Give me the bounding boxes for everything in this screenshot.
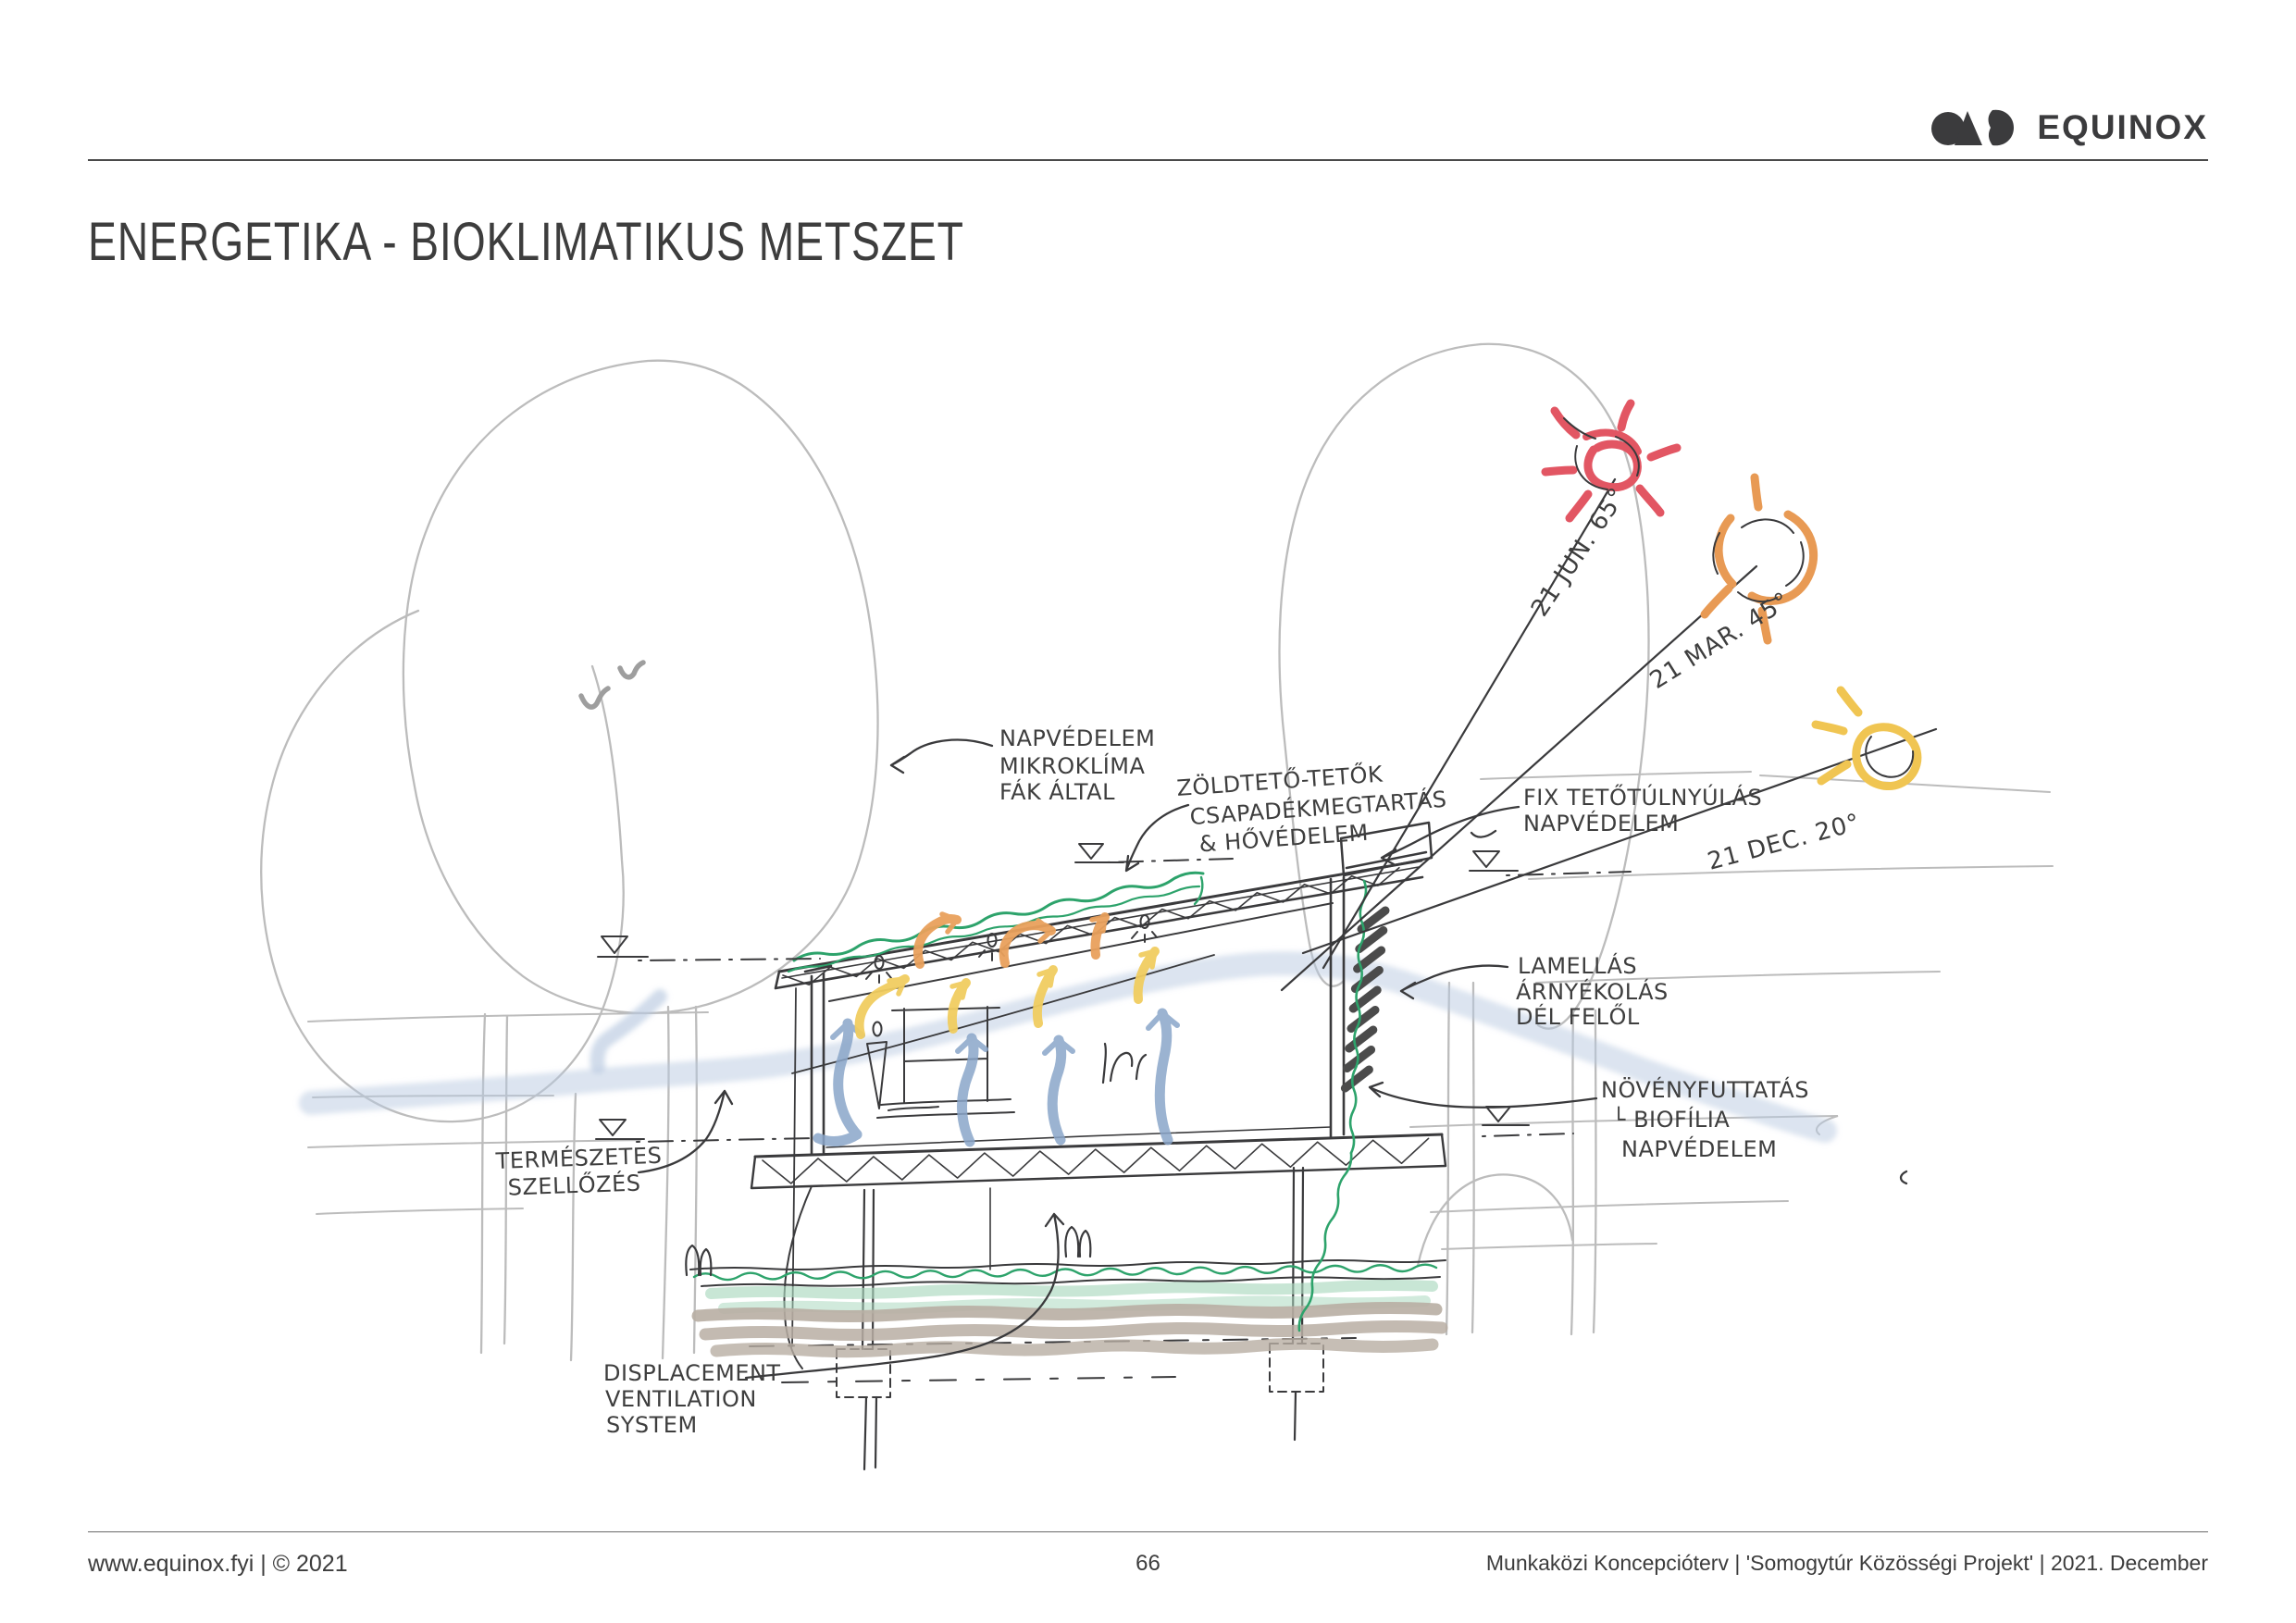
trees xyxy=(261,344,1648,1360)
label-line: FIX TETŐTÚLNYÚLÁS xyxy=(1523,783,1762,811)
header-rule xyxy=(88,159,2208,161)
footer-right: Munkaközi Koncepcióterv | 'Somogytúr Köz… xyxy=(1486,1551,2208,1576)
label-line: DÉL FELŐL xyxy=(1516,1002,1640,1030)
annotation-green-roof: ZÖLDTETŐ-TETŐK CSAPADÉKMEGTARTÁS & HŐVÉD… xyxy=(1175,755,1449,859)
annotation-displacement: DISPLACEMENT VENTILATION SYSTEM xyxy=(603,1360,781,1438)
sun-winter-icon xyxy=(1816,690,1917,787)
label-line: FÁK ÁLTAL xyxy=(999,778,1115,805)
label-line: DISPLACEMENT xyxy=(603,1360,781,1386)
label-line: ÁRNYÉKOLÁS xyxy=(1516,978,1669,1005)
annotation-trees: NAPVÉDELEM MIKROKLÍMA FÁK ÁLTAL xyxy=(999,725,1155,805)
cool-air-arrow xyxy=(818,1013,1177,1142)
label-line: VENTILATION xyxy=(605,1386,757,1412)
equinox-logo-icon xyxy=(1931,107,2024,148)
label-line: LAMELLÁS xyxy=(1518,952,1637,979)
label-line: NAPVÉDELEM xyxy=(999,725,1155,751)
plant-sketch xyxy=(1065,1227,1090,1257)
hot-air-arrow xyxy=(918,914,1105,964)
label-line: MIKROKLÍMA xyxy=(999,752,1145,779)
annotation-overhang: FIX TETŐTÚLNYÚLÁS NAPVÉDELEM xyxy=(1523,783,1762,836)
lamella-louvers xyxy=(1345,911,1385,1088)
brand-name: EQUINOX xyxy=(2037,108,2208,147)
page-title: ENERGETIKA - BIOKLIMATIKUS METSZET xyxy=(88,211,964,273)
label-line: NAPVÉDELEM xyxy=(1523,810,1679,836)
label-line: SYSTEM xyxy=(606,1412,698,1438)
bird-icon xyxy=(581,663,643,707)
label-line: └ BIOFÍLIA xyxy=(1612,1106,1730,1133)
sun-angle-winter: 21 DEC. 20° xyxy=(1705,809,1864,876)
annotation-natural-vent: TERMÉSZETES SZELLŐZÉS xyxy=(494,1142,664,1201)
sun-paths: 21 JUN. 65° 21 MAR. 45° 21 DEC. 20° xyxy=(1282,403,1936,990)
plant-sketch xyxy=(686,1245,711,1275)
foundation-pier xyxy=(1270,1344,1323,1392)
slide-page: EQUINOX ENERGETIKA - BIOKLIMATIKUS METSZ… xyxy=(0,0,2296,1623)
footer-rule xyxy=(88,1531,2208,1532)
brand-logo: EQUINOX xyxy=(1931,107,2208,148)
annotation-lamella: LAMELLÁS ÁRNYÉKOLÁS DÉL FELŐL xyxy=(1516,952,1669,1030)
label-line: NAPVÉDELEM xyxy=(1621,1135,1777,1162)
label-line: NÖVÉNYFUTTATÁS xyxy=(1601,1076,1809,1103)
